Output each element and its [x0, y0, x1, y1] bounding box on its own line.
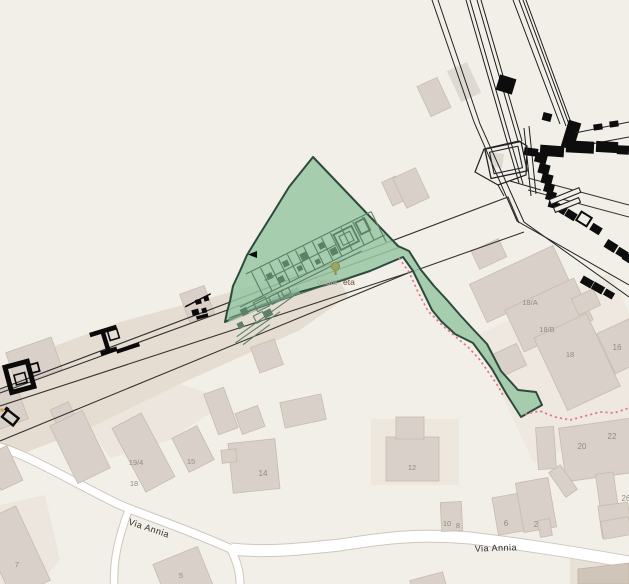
svg-text:15: 15: [187, 457, 195, 466]
svg-text:5: 5: [179, 571, 183, 580]
svg-text:18: 18: [566, 350, 574, 359]
svg-text:eta: eta: [343, 277, 355, 287]
svg-text:Via Annia: Via Annia: [475, 542, 518, 553]
svg-text:16: 16: [613, 343, 622, 352]
svg-text:26: 26: [622, 494, 629, 503]
svg-text:20: 20: [578, 442, 587, 451]
svg-text:8: 8: [456, 521, 460, 530]
svg-text:7: 7: [15, 560, 19, 569]
svg-text:14: 14: [259, 469, 268, 478]
svg-text:6: 6: [504, 519, 509, 528]
svg-text:10: 10: [443, 519, 451, 528]
svg-text:18/A: 18/A: [522, 298, 537, 307]
svg-text:onuta: onuta: [317, 278, 338, 287]
svg-text:18/B: 18/B: [539, 325, 554, 334]
svg-text:19/4: 19/4: [129, 458, 144, 467]
svg-text:18: 18: [130, 479, 138, 488]
svg-text:2: 2: [534, 520, 539, 529]
svg-text:12: 12: [408, 463, 416, 472]
svg-text:22: 22: [608, 432, 617, 441]
